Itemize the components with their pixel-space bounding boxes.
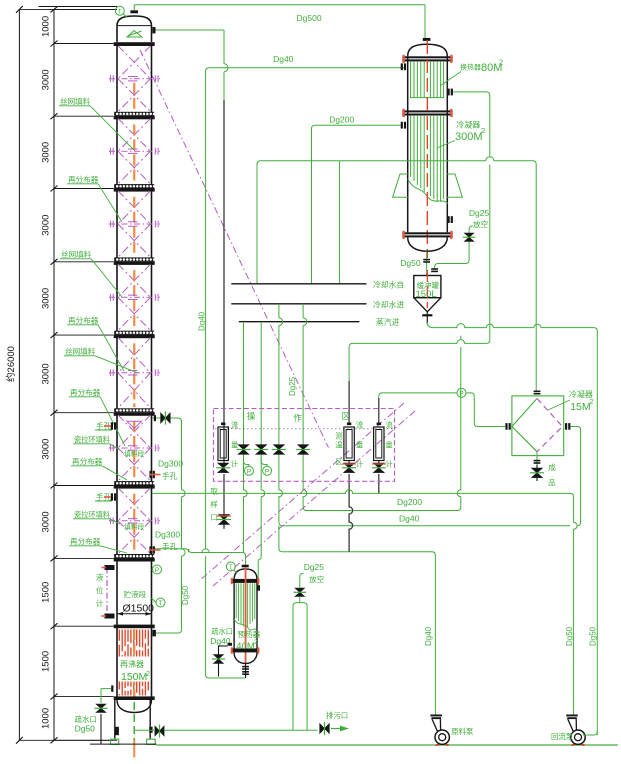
- svg-text:2: 2: [146, 671, 150, 678]
- svg-text:Dg300: Dg300: [158, 459, 183, 469]
- svg-text:量: 量: [356, 441, 363, 450]
- svg-text:放空: 放空: [309, 574, 325, 584]
- svg-text:操: 操: [247, 411, 256, 421]
- svg-text:Dg200: Dg200: [329, 115, 354, 125]
- svg-text:Dg50: Dg50: [400, 258, 421, 268]
- svg-text:流: 流: [356, 421, 363, 430]
- svg-text:原料泵: 原料泵: [451, 727, 474, 736]
- svg-text:P: P: [265, 468, 269, 475]
- svg-text:约26000: 约26000: [5, 346, 17, 382]
- svg-text:丝网填料: 丝网填料: [60, 96, 91, 106]
- svg-text:流: 流: [231, 421, 238, 430]
- svg-text:40M: 40M: [236, 641, 255, 652]
- svg-text:作: 作: [293, 413, 302, 423]
- svg-text:口: 口: [210, 513, 217, 522]
- svg-text:Dg50: Dg50: [565, 626, 574, 646]
- svg-text:1000: 1000: [41, 708, 52, 729]
- svg-text:区: 区: [342, 411, 351, 421]
- svg-text:换热器: 换热器: [460, 63, 481, 72]
- svg-text:Dg50: Dg50: [589, 626, 598, 646]
- svg-text:填料段: 填料段: [124, 522, 145, 531]
- svg-text:瓷拉环填料: 瓷拉环填料: [74, 435, 110, 444]
- svg-text:疏水口: 疏水口: [211, 627, 233, 636]
- svg-text:T: T: [159, 600, 163, 607]
- svg-text:预热器: 预热器: [237, 629, 260, 639]
- svg-text:Dg300: Dg300: [155, 530, 180, 540]
- svg-text:手孔: 手孔: [162, 541, 178, 551]
- svg-text:排污口: 排污口: [326, 711, 348, 720]
- svg-text:2: 2: [590, 399, 594, 406]
- svg-text:P: P: [459, 391, 463, 398]
- svg-text:冷凝器: 冷凝器: [456, 120, 480, 130]
- svg-text:填料段: 填料段: [124, 449, 145, 458]
- svg-text:再分布器: 再分布器: [70, 387, 101, 397]
- svg-text:再分布器: 再分布器: [72, 456, 103, 466]
- svg-text:放空: 放空: [473, 219, 489, 229]
- svg-text:计: 计: [356, 460, 363, 469]
- svg-text:Dg25: Dg25: [469, 208, 490, 218]
- svg-text:1500: 1500: [41, 651, 52, 672]
- svg-text:成: 成: [548, 462, 556, 472]
- svg-text:3000: 3000: [41, 215, 52, 236]
- svg-text:2: 2: [254, 639, 258, 646]
- svg-text:贮液段: 贮液段: [124, 589, 147, 599]
- svg-text:手孔: 手孔: [162, 471, 178, 481]
- svg-text:再沸器: 再沸器: [120, 659, 144, 669]
- svg-text:1000: 1000: [41, 16, 52, 37]
- svg-text:区: 区: [335, 458, 343, 467]
- svg-text:取: 取: [210, 487, 218, 496]
- svg-text:Dg25: Dg25: [304, 562, 325, 572]
- svg-text:P: P: [155, 567, 159, 574]
- svg-text:3000: 3000: [41, 363, 52, 384]
- svg-text:样: 样: [210, 500, 217, 509]
- svg-text:2: 2: [499, 58, 503, 67]
- svg-text:150L: 150L: [416, 289, 437, 300]
- svg-text:3000: 3000: [41, 142, 52, 163]
- svg-text:Dg500: Dg500: [297, 13, 322, 23]
- svg-text:测: 测: [335, 432, 342, 441]
- svg-text:位: 位: [96, 586, 104, 595]
- svg-text:1500: 1500: [41, 582, 52, 603]
- svg-text:Ø1500: Ø1500: [123, 603, 155, 615]
- svg-text:再分布器: 再分布器: [68, 174, 99, 184]
- svg-text:Dg40: Dg40: [424, 626, 433, 646]
- svg-text:3000: 3000: [41, 511, 52, 532]
- svg-text:蒸汽进: 蒸汽进: [376, 317, 400, 327]
- svg-text:冷却水自: 冷却水自: [373, 280, 404, 290]
- svg-text:量: 量: [231, 441, 238, 450]
- svg-text:计: 计: [386, 460, 393, 469]
- svg-text:Dg40: Dg40: [198, 311, 207, 331]
- svg-text:冷凝器: 冷凝器: [569, 389, 593, 399]
- svg-text:丝网填料: 丝网填料: [65, 346, 96, 356]
- svg-text:T: T: [118, 8, 122, 15]
- svg-text:瓷拉环填料: 瓷拉环填料: [74, 510, 110, 519]
- svg-text:量: 量: [386, 441, 393, 450]
- svg-text:冷却水进: 冷却水进: [373, 300, 404, 310]
- svg-text:15M: 15M: [570, 401, 590, 413]
- svg-text:计: 计: [96, 599, 104, 608]
- svg-text:150M: 150M: [121, 671, 147, 683]
- svg-text:2: 2: [481, 126, 485, 135]
- svg-text:丝网填料: 丝网填料: [61, 249, 92, 259]
- svg-text:Dg200: Dg200: [397, 497, 422, 507]
- svg-text:流: 流: [386, 421, 393, 430]
- svg-text:Dg25: Dg25: [288, 376, 297, 396]
- svg-text:P: P: [247, 468, 251, 475]
- svg-text:Dg40: Dg40: [273, 54, 294, 64]
- svg-text:计: 计: [231, 460, 238, 469]
- svg-text:3000: 3000: [41, 288, 52, 309]
- svg-text:再分布器: 再分布器: [68, 315, 99, 325]
- svg-text:回流泵: 回流泵: [551, 732, 574, 741]
- svg-text:Dg50: Dg50: [181, 585, 190, 605]
- svg-text:品: 品: [548, 478, 556, 487]
- svg-text:T: T: [229, 564, 233, 571]
- svg-text:300M: 300M: [455, 131, 483, 143]
- svg-text:再分布器: 再分布器: [70, 536, 101, 546]
- svg-text:液: 液: [96, 573, 104, 582]
- svg-text:Dg50: Dg50: [75, 724, 96, 734]
- svg-text:3000: 3000: [41, 69, 52, 90]
- svg-text:3000: 3000: [41, 439, 52, 460]
- svg-text:Dg40: Dg40: [399, 514, 420, 524]
- svg-text:温: 温: [335, 441, 343, 450]
